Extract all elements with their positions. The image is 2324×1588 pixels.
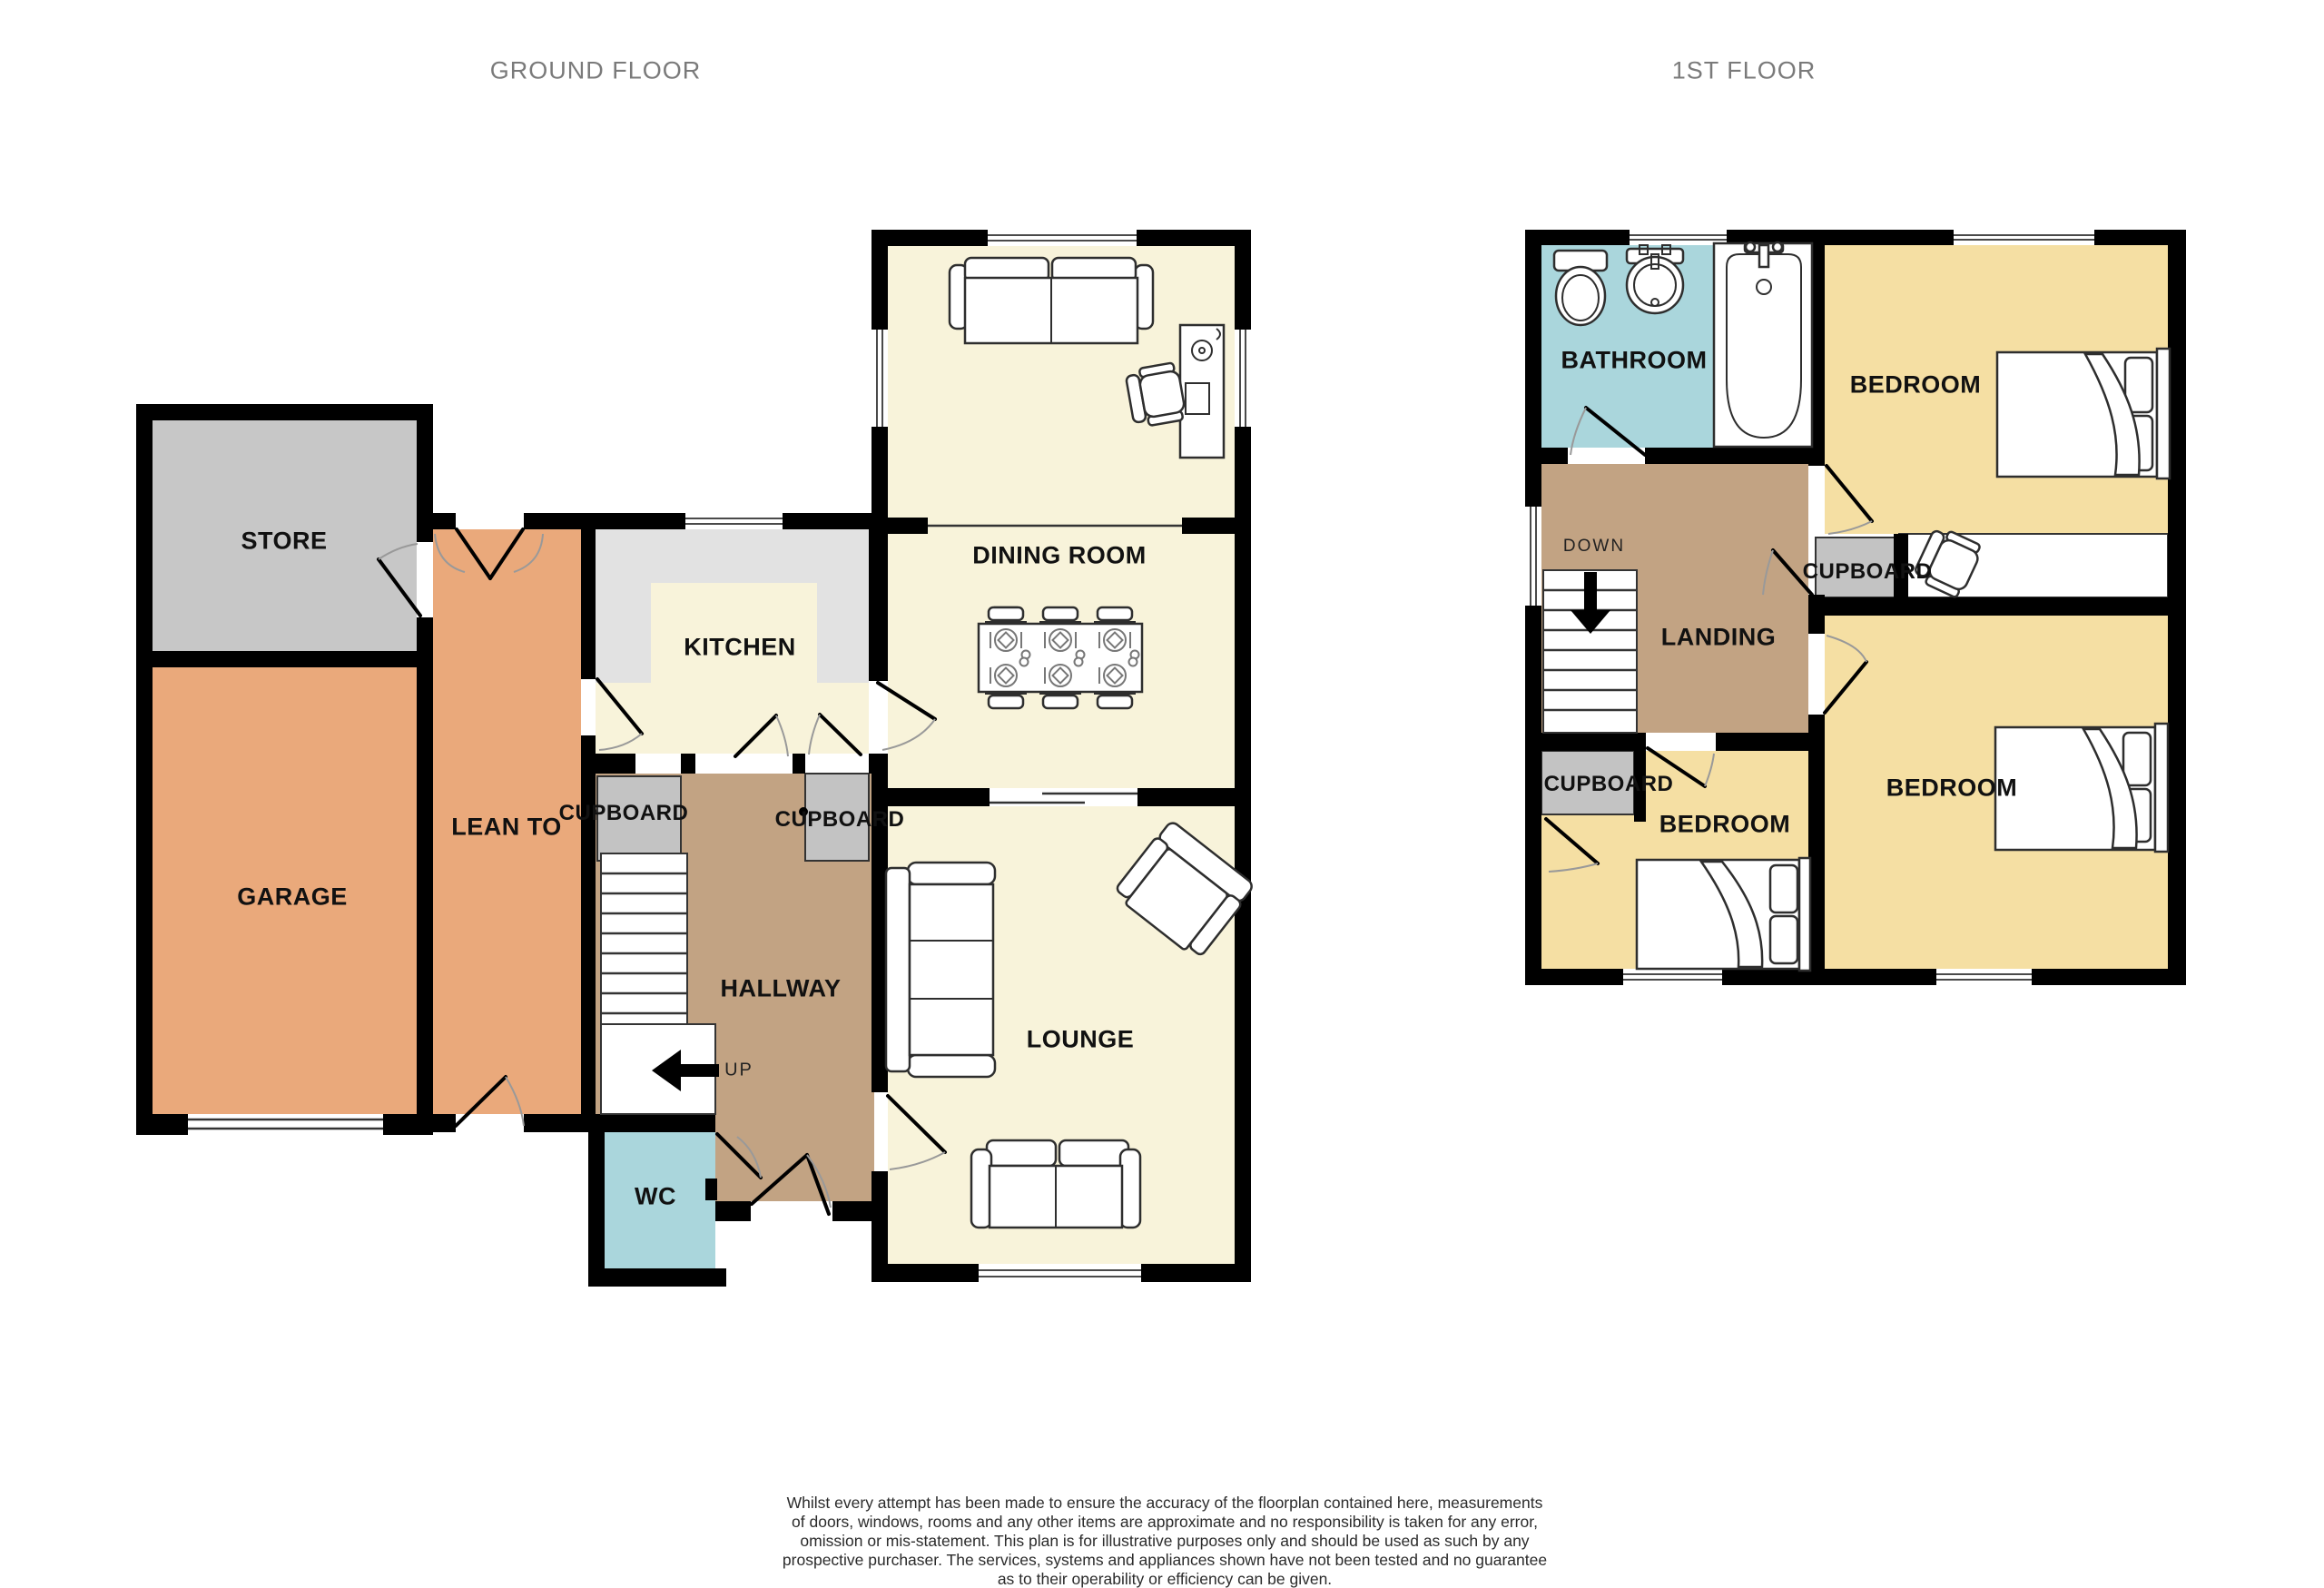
room-label-cupboard-bottom: CUPBOARD [1544,772,1674,797]
room-label-hallway: HALLWAY [720,975,841,1003]
disclaimer-line: Whilst every attempt has been made to en… [711,1494,1619,1513]
single-bed-back [1637,858,1810,971]
room-label-bedroom-side: BEDROOM [1886,774,2018,803]
disclaimer-text: Whilst every attempt has been made to en… [711,1494,1619,1588]
room-label-bedroom-back: BEDROOM [1659,811,1791,839]
lounge-window [979,1264,1141,1282]
room-label-store: STORE [241,528,327,556]
sitting-area-right-window [1235,330,1251,427]
desk [1180,325,1224,458]
double-bed-side [1995,724,2168,852]
two-seat-sofa-sitting-area [950,258,1153,343]
toilet-icon [1554,251,1607,325]
stairs-down-label: DOWN [1563,537,1625,557]
ground-floor-title: GROUND FLOOR [490,57,702,85]
three-seat-sofa-lounge [886,863,995,1077]
disclaimer-line: omission or mis-statement. This plan is … [711,1532,1619,1551]
bedroom-side-window [1936,969,2032,985]
room-label-cupboard-top: CUPBOARD [1803,559,1933,585]
room-label-dining-room: DINING ROOM [972,542,1147,570]
ground-floor-plan [136,230,1256,1287]
room-label-wc: WC [635,1183,676,1211]
double-bed-front [1997,349,2170,478]
room-label-cupboard-left: CUPBOARD [559,801,689,826]
disclaimer-line: prospective purchaser. The services, sys… [711,1551,1619,1570]
stairs-up-label: UP [724,1060,753,1081]
staircase-down [1543,570,1637,733]
disclaimer-line: as to their operability or efficiency ca… [711,1570,1619,1588]
bedroom-front-window [1954,230,2094,245]
first-floor-plan [1525,230,2186,985]
disclaimer-line: of doors, windows, rooms and any other i… [711,1513,1619,1532]
bathroom-window [1630,230,1727,245]
dining-table-and-chairs [979,607,1142,708]
room-label-kitchen: KITCHEN [684,634,796,662]
room-label-bedroom-front: BEDROOM [1850,371,1982,399]
sitting-area-left-window [871,330,888,427]
kitchen-window [685,513,783,529]
room-label-lounge: LOUNGE [1027,1026,1135,1054]
room-label-cupboard-right: CUPBOARD [775,807,905,833]
floorplan-page: GROUND FLOOR 1ST FLOOR STORE GARAGE LEAN… [0,0,2324,1588]
landing-window [1525,507,1541,606]
sink-icon [1627,245,1683,313]
bedroom-back-window [1623,969,1722,985]
bathtub-icon [1714,242,1812,447]
room-label-bathroom: BATHROOM [1561,347,1708,375]
room-label-garage: GARAGE [237,883,348,912]
room-label-lean-to: LEAN TO [451,814,562,842]
room-label-landing: LANDING [1661,624,1777,652]
sitting-area-top-window [988,230,1137,246]
two-seat-sofa-lounge [971,1140,1140,1228]
first-floor-title: 1ST FLOOR [1672,57,1817,85]
